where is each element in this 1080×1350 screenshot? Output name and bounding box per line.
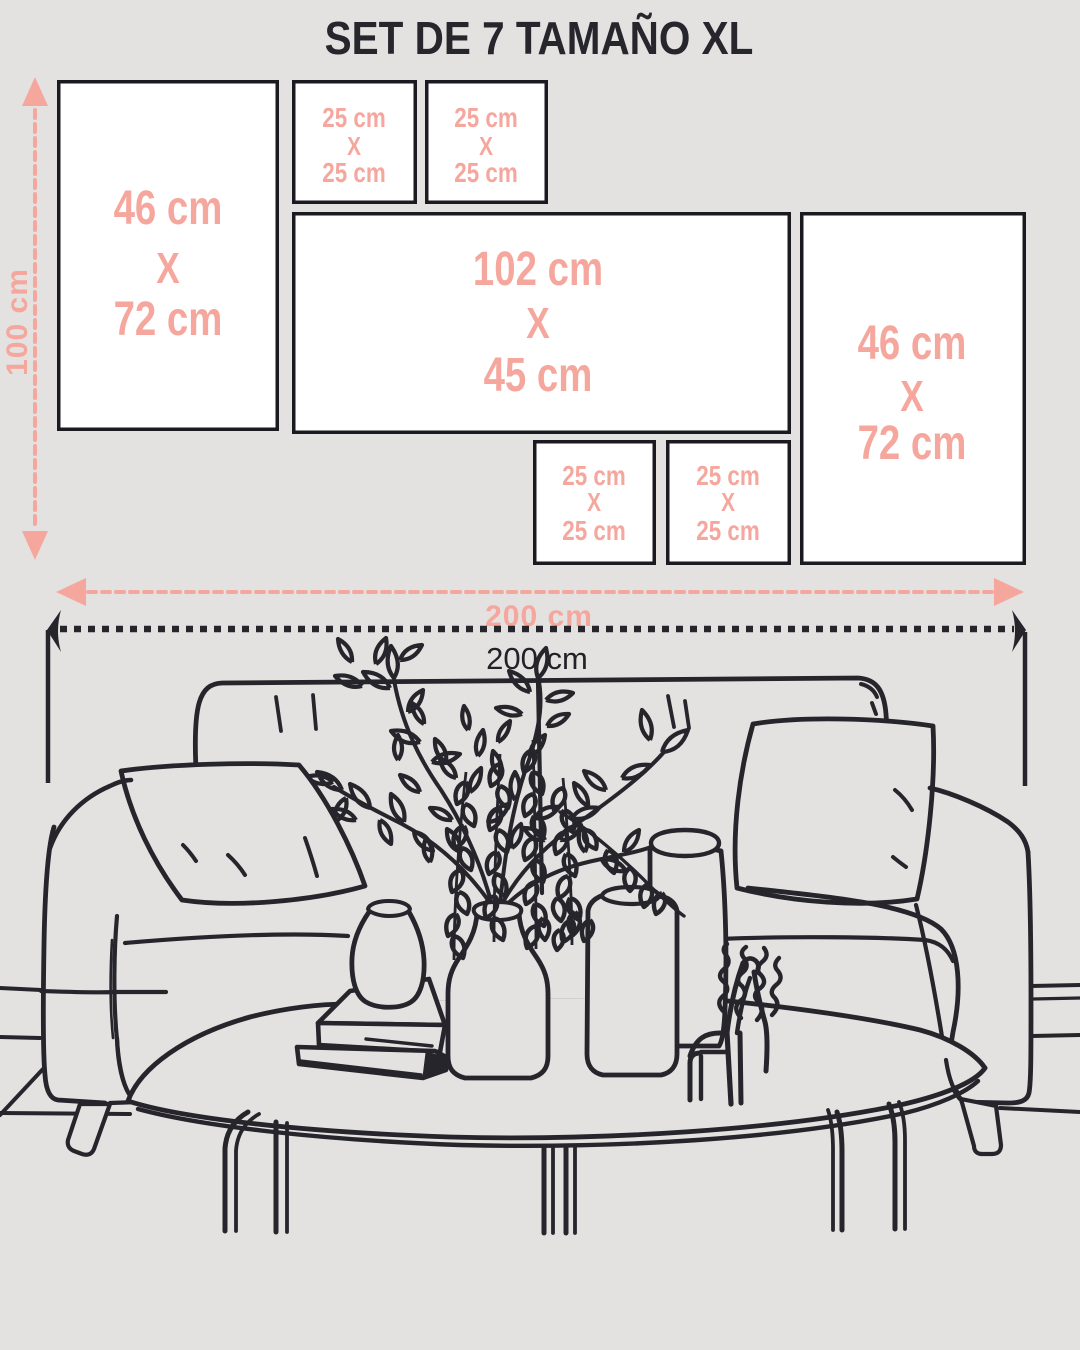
svg-text:25 cm: 25 cm: [562, 516, 625, 547]
svg-text:72 cm: 72 cm: [858, 417, 967, 470]
svg-text:100 cm: 100 cm: [1, 268, 34, 376]
svg-text:25 cm: 25 cm: [322, 103, 385, 134]
svg-text:X: X: [347, 132, 361, 161]
svg-text:X: X: [526, 299, 550, 348]
svg-text:25 cm: 25 cm: [454, 103, 517, 134]
svg-text:46 cm: 46 cm: [114, 182, 223, 235]
svg-text:X: X: [156, 244, 180, 293]
svg-text:25 cm: 25 cm: [454, 158, 517, 189]
svg-text:102 cm: 102 cm: [473, 243, 603, 296]
svg-text:X: X: [479, 132, 493, 161]
svg-text:X: X: [721, 488, 735, 517]
svg-text:25 cm: 25 cm: [322, 158, 385, 189]
svg-text:25 cm: 25 cm: [696, 516, 759, 547]
svg-text:46 cm: 46 cm: [858, 317, 967, 370]
svg-text:X: X: [587, 488, 601, 517]
svg-text:X: X: [900, 372, 924, 421]
svg-text:SET DE 7 TAMAÑO XL: SET DE 7 TAMAÑO XL: [325, 14, 754, 65]
svg-text:72 cm: 72 cm: [114, 293, 223, 346]
svg-text:45 cm: 45 cm: [484, 349, 593, 402]
